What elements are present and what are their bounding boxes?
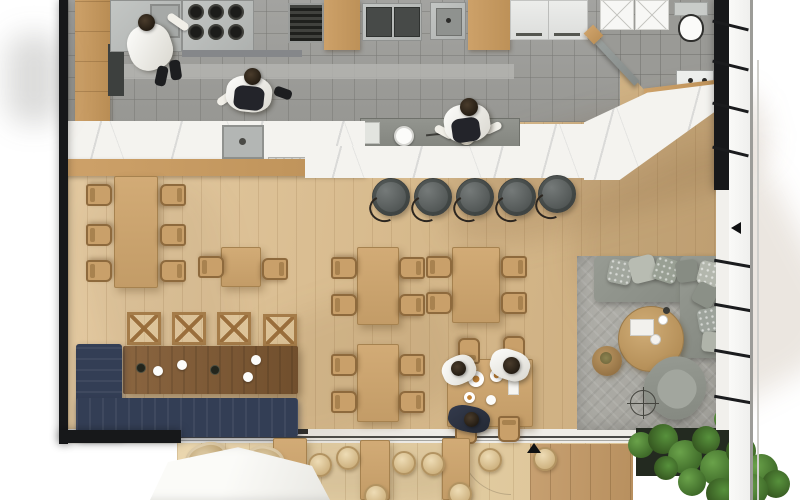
dining-table-four-seat [452,247,500,323]
plant-foliage [678,468,706,496]
dining-chair [426,256,452,278]
dining-chair [331,391,357,413]
window-outer-rail [750,0,753,500]
plant-foliage [654,456,678,480]
cup [650,334,661,345]
woven-stool [478,448,502,472]
x-back-stool [127,312,161,345]
serving-tray [630,319,654,336]
side-table-plant [600,352,612,364]
burner [188,24,204,40]
cutting-board [364,122,380,144]
exterior-shadow [6,34,62,124]
dining-table-six-seat [114,176,158,288]
dining-chair [86,260,112,282]
bar-stool [498,178,536,216]
plate [243,372,253,382]
plate [394,126,414,146]
plate [177,360,187,370]
kitchen-tall-cabinet [75,0,110,122]
cabinet-handle [554,33,580,36]
fryer-basket [394,7,420,37]
dining-table-four-seat [357,247,399,325]
woven-stool [421,452,445,476]
dining-chair [501,292,527,314]
window-frame-right [716,190,729,430]
cabinet-handle [516,33,542,36]
woven-stool [336,446,360,470]
bar-stool [456,178,494,216]
wall-left [59,0,68,444]
dining-chair [198,256,224,278]
bar-stool [414,178,452,216]
burner [208,24,224,40]
dining-chair [501,256,527,278]
wall-top-right [714,0,729,190]
toilet-bowl [678,14,704,42]
wine-bottle [136,363,146,373]
floorplan-render [0,0,800,500]
bath-storage-cabinet [600,0,670,30]
plate [153,366,163,376]
wall-bottom-left [59,430,181,443]
sliding-door-track-rail [178,440,700,441]
bar-sink-drain [239,138,246,145]
fryer-basket [366,7,392,37]
dining-chair [262,258,288,280]
dining-chair [399,294,425,316]
compass-floor-decor [630,390,656,416]
wash-sink-drain [446,18,451,23]
dining-table-four-seat [357,344,399,422]
dining-chair [86,184,112,206]
x-back-stool [263,314,297,347]
kitchen-cabinet [468,0,510,50]
window-glazing-band [729,0,751,500]
burner [188,4,204,20]
dining-chair [331,354,357,376]
x-back-stool [172,312,206,345]
x-cabinet-door [635,0,669,30]
chef-person [214,66,294,126]
carafe [663,307,670,314]
window-outer-rail-light [757,60,759,500]
dining-chair [86,224,112,246]
bar-stool [538,175,576,213]
wine-bottle [210,365,220,375]
woven-stool [392,451,416,475]
plate [251,355,261,365]
dining-chair [399,391,425,413]
dining-chair [331,294,357,316]
bar-counter-step [520,124,586,178]
threshold-marker [527,443,541,453]
dining-chair [399,354,425,376]
dining-chair [160,184,186,206]
dining-chair [331,257,357,279]
dining-chair [399,257,425,279]
burner [228,4,244,20]
chef-person [428,90,508,162]
chef-person [120,8,190,88]
dining-chair [160,224,186,246]
diner-person [438,348,548,440]
kitchen-cabinet [324,0,360,50]
stove-vent-strip [182,50,302,57]
dining-chair [426,292,452,314]
cup [658,315,668,325]
x-cabinet-door [600,0,634,30]
dining-table-two-seat [221,247,261,287]
section-marker-left [731,222,741,234]
x-back-stool [217,312,251,345]
burner [208,4,224,20]
char-grill [288,3,324,43]
bar-stool [372,178,410,216]
dining-chair [160,260,186,282]
cabinet-seam [548,0,549,40]
burner [228,24,244,40]
woven-stool [448,482,472,500]
